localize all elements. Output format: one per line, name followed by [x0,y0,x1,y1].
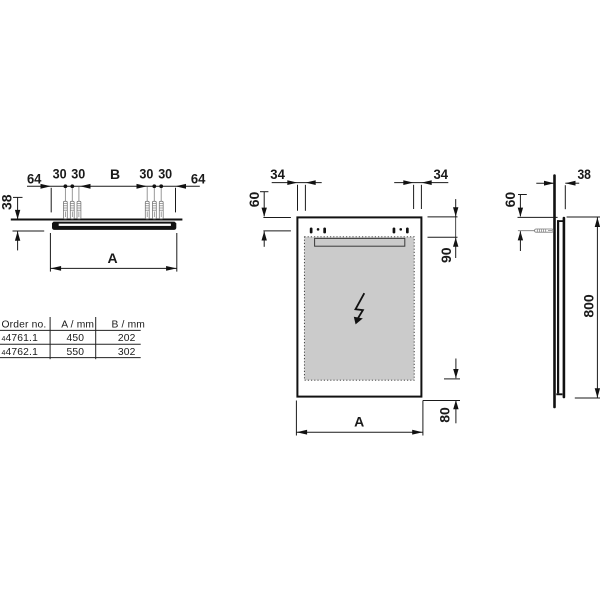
svg-text:44761.1: 44761.1 [2,333,39,344]
svg-text:800: 800 [581,294,597,318]
svg-text:38: 38 [0,194,14,210]
svg-text:38: 38 [577,166,591,182]
svg-text:550: 550 [66,347,84,358]
svg-text:64: 64 [191,170,206,186]
svg-text:A / mm: A / mm [61,320,94,331]
svg-text:B / mm: B / mm [112,320,146,331]
svg-text:B: B [110,166,120,182]
svg-text:30: 30 [53,166,67,182]
svg-text:A: A [108,250,118,266]
svg-text:30: 30 [71,166,85,182]
svg-text:60: 60 [502,192,518,208]
svg-text:30: 30 [158,166,172,182]
svg-text:44762.1: 44762.1 [2,347,39,358]
svg-text:302: 302 [118,347,136,358]
svg-text:34: 34 [434,166,449,182]
svg-text:202: 202 [118,333,136,344]
svg-text:450: 450 [66,333,84,344]
svg-text:A: A [354,414,364,430]
svg-text:80: 80 [436,407,452,423]
svg-text:60: 60 [246,192,262,208]
svg-text:30: 30 [139,166,153,182]
svg-text:Order no.: Order no. [2,320,47,331]
svg-text:34: 34 [270,166,285,182]
svg-text:90: 90 [438,247,454,263]
svg-text:64: 64 [27,170,42,186]
